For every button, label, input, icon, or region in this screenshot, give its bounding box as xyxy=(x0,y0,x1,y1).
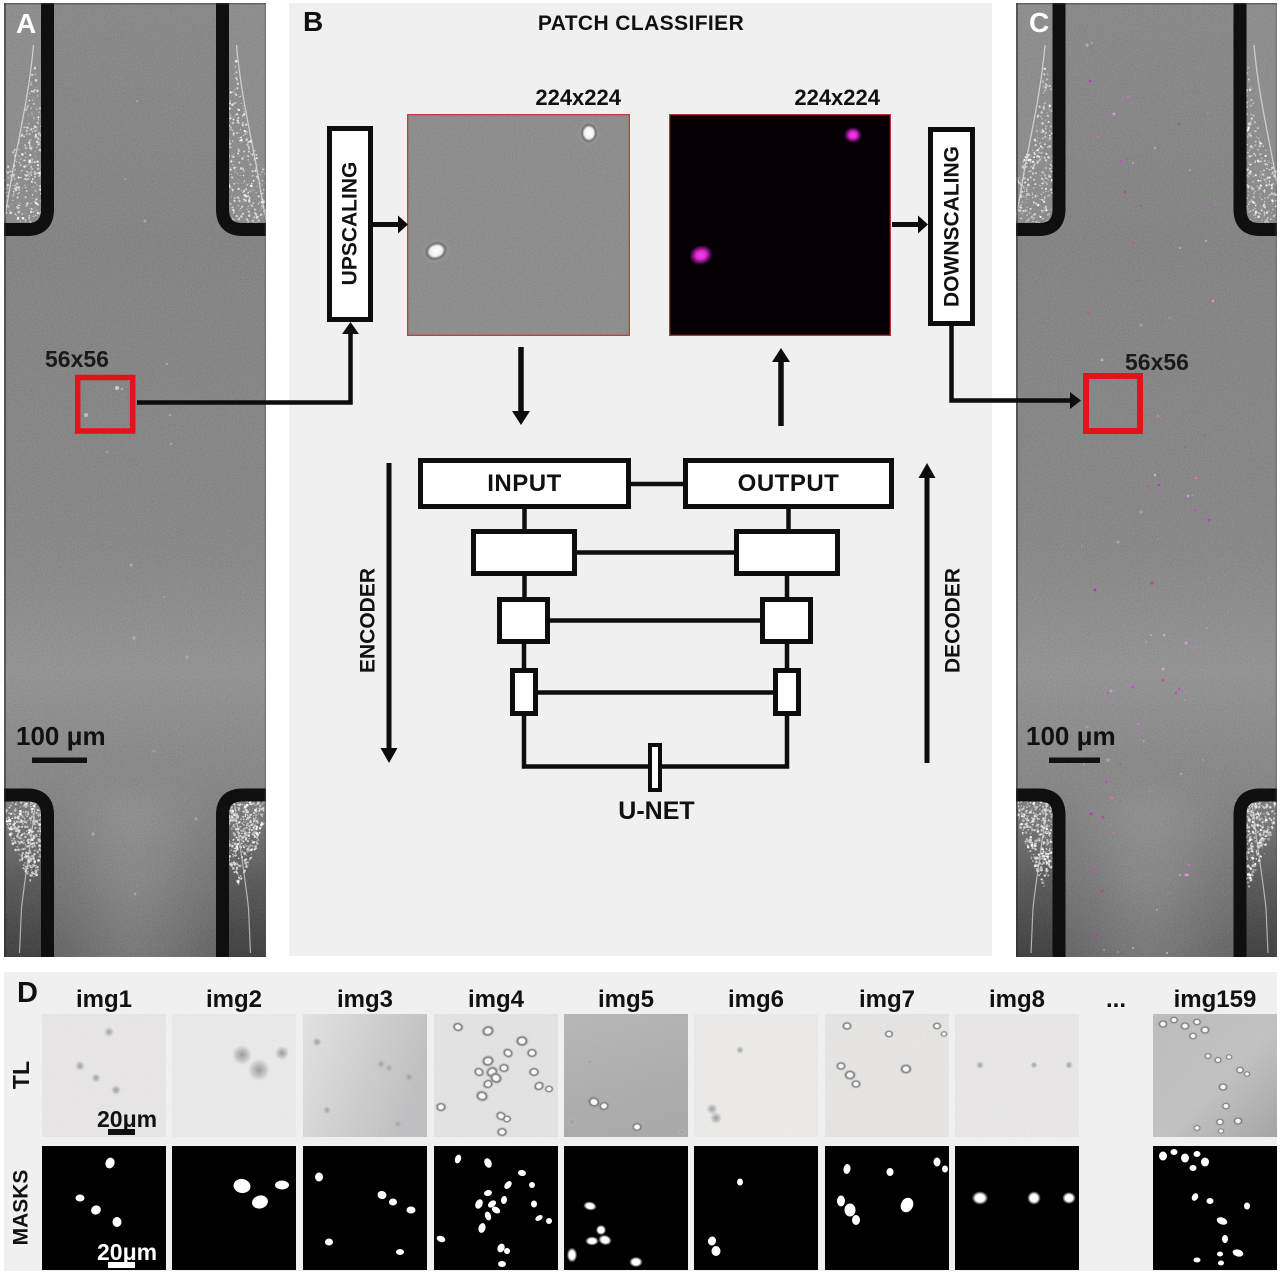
svg-text:20μm: 20μm xyxy=(97,1239,157,1265)
svg-text:56x56: 56x56 xyxy=(1125,349,1189,375)
svg-text:A: A xyxy=(16,8,36,39)
svg-text:C: C xyxy=(1029,7,1049,38)
svg-text:100 μm: 100 μm xyxy=(16,721,106,751)
svg-text:20μm: 20μm xyxy=(97,1106,157,1132)
svg-text:56x56: 56x56 xyxy=(45,346,109,372)
svg-text:100 μm: 100 μm xyxy=(1026,721,1116,751)
